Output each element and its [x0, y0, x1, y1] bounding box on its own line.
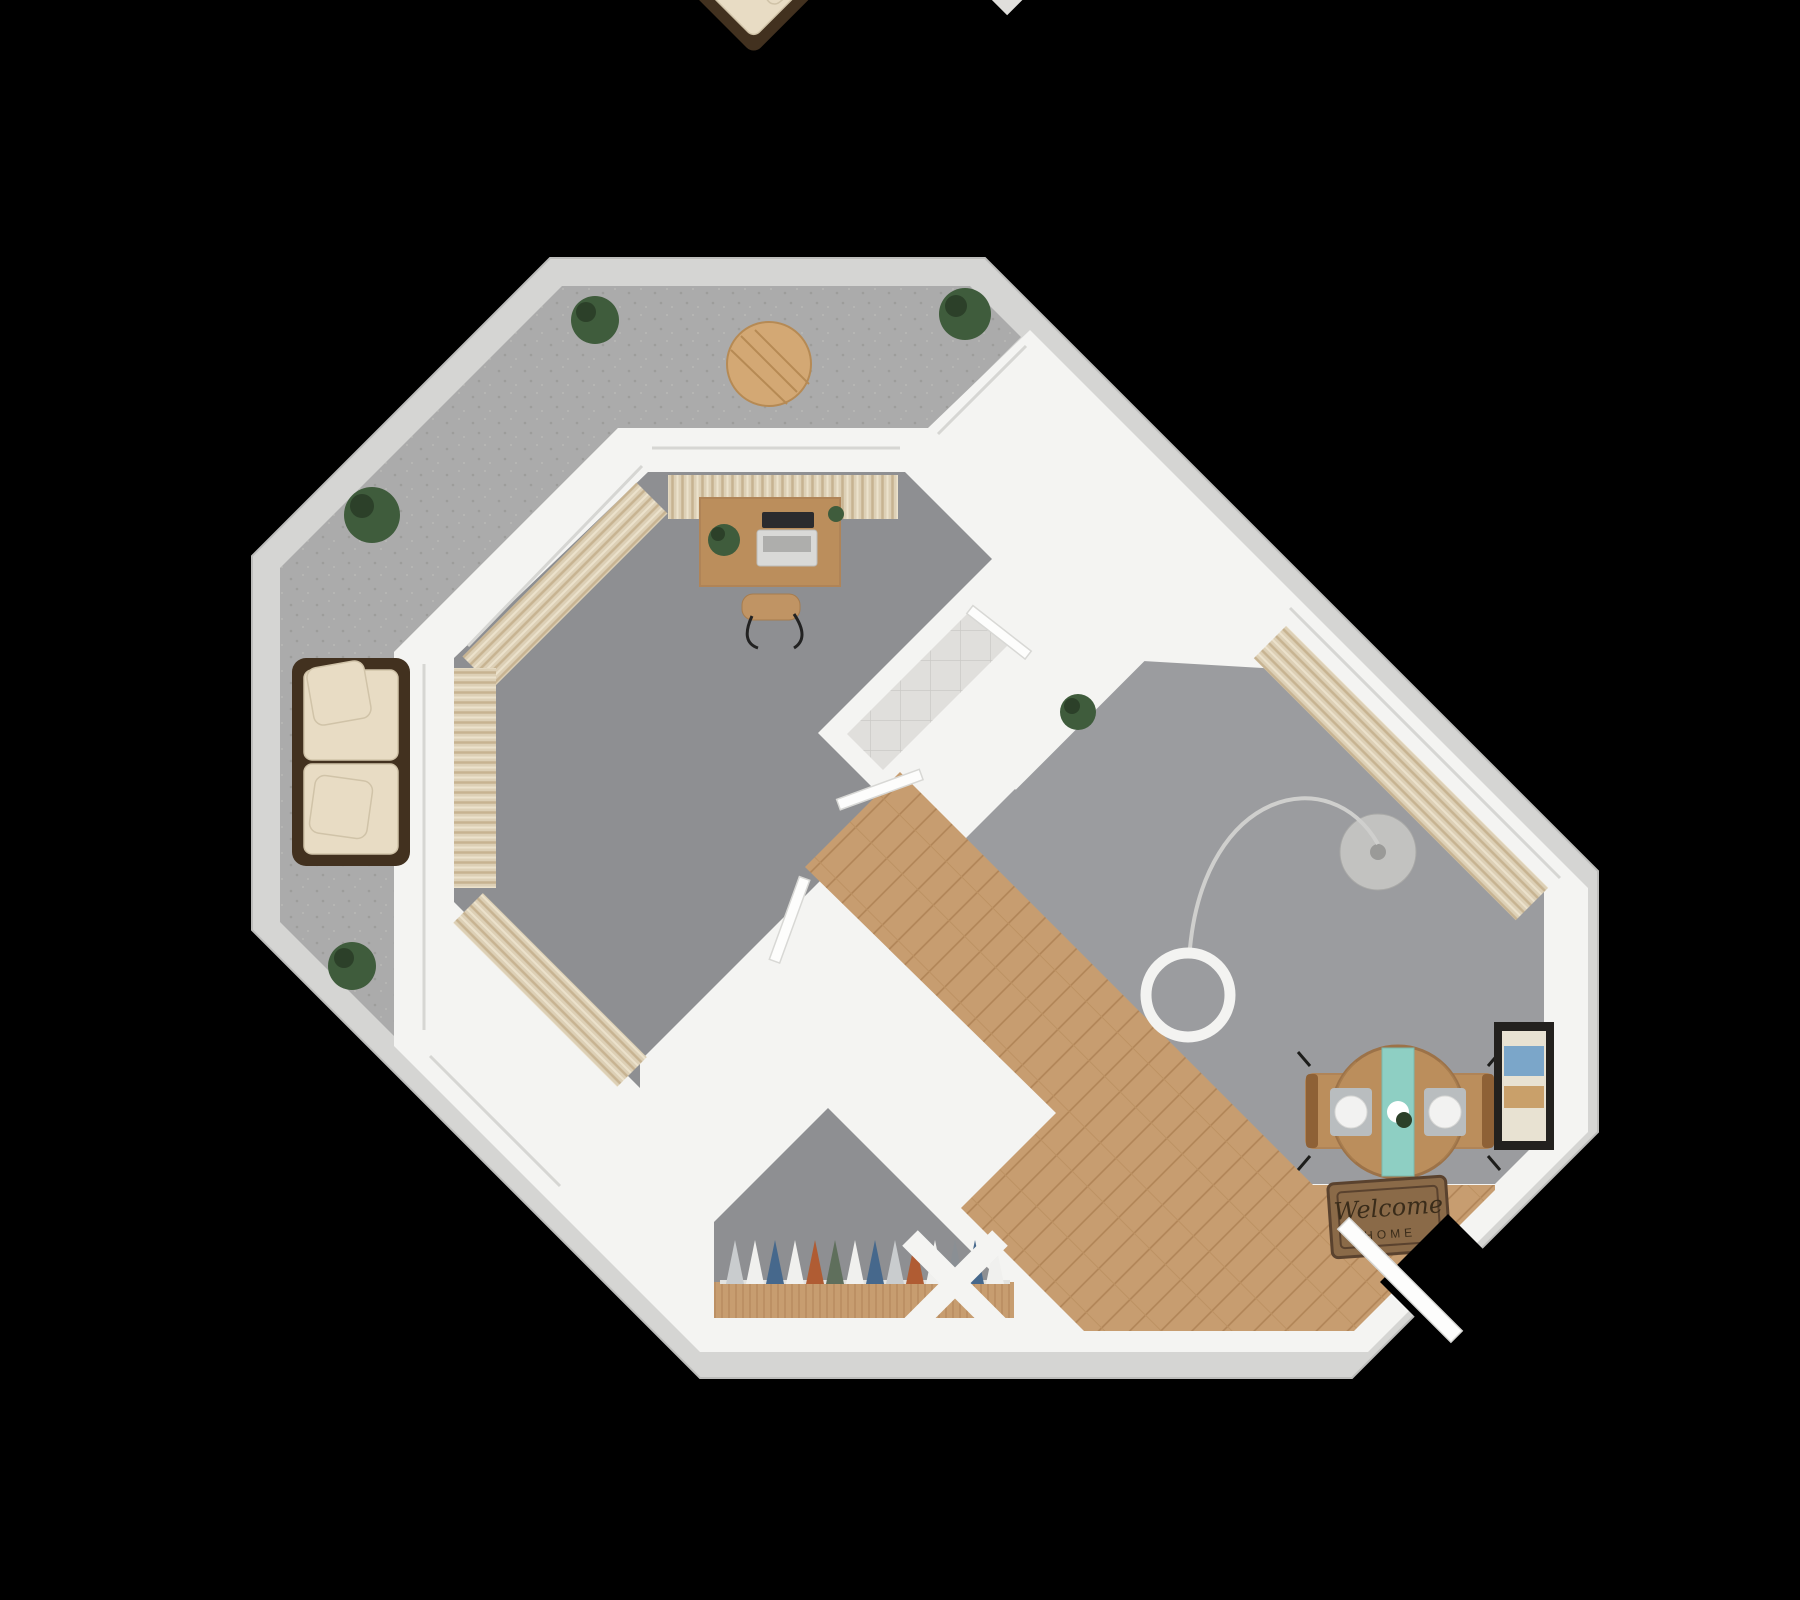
- plant-leaves: [334, 948, 354, 968]
- desk-plant-leaf: [711, 527, 725, 541]
- floor-plan-svg: Welcome HOME: [0, 0, 1800, 1600]
- lamp-pole: [1370, 844, 1386, 860]
- plate: [1335, 1096, 1367, 1128]
- living-plant: [1060, 694, 1096, 730]
- potted-plant: [328, 942, 376, 990]
- desk-plant: [708, 524, 740, 556]
- laptop-keyboard: [763, 536, 811, 552]
- art-blue-patch: [1504, 1046, 1544, 1076]
- plant-leaves: [350, 494, 374, 518]
- plant-leaves: [945, 295, 967, 317]
- sofa-pillow: [305, 659, 372, 726]
- potted-plant: [939, 288, 991, 340]
- centerpiece-leaves: [1396, 1112, 1412, 1128]
- framed-art-entry: [1494, 1022, 1554, 1150]
- art-tan-patch: [1504, 1086, 1544, 1108]
- small-plant: [828, 506, 844, 522]
- sofa-pillow: [308, 774, 374, 840]
- potted-plant: [344, 487, 400, 543]
- chair-back: [1306, 1074, 1318, 1148]
- living-plant-leaf: [1064, 698, 1080, 714]
- outdoor-sofa: [292, 658, 410, 866]
- chair-back: [1482, 1074, 1494, 1148]
- floor-plan-canvas: Welcome HOME: [0, 0, 1800, 1600]
- plate: [1429, 1096, 1461, 1128]
- plant-leaves: [576, 302, 596, 322]
- potted-plant: [571, 296, 619, 344]
- laptop-screen: [762, 512, 814, 528]
